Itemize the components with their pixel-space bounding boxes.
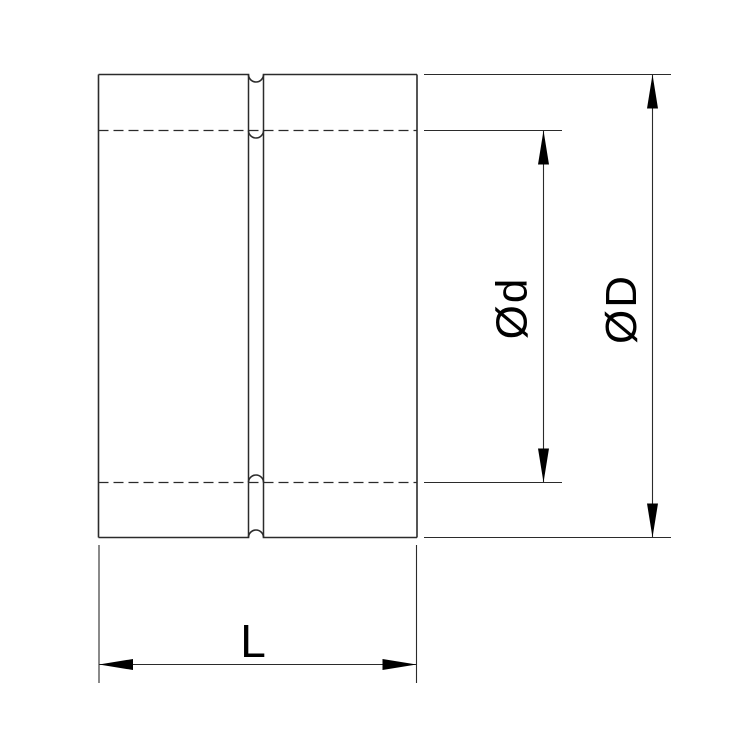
label-inner-diameter: Ød: [487, 277, 536, 340]
arrowhead-outer-diameter-down-icon: [647, 504, 658, 538]
arrowhead-length-left-icon: [99, 659, 133, 670]
label-outer-diameter: ØD: [597, 274, 646, 344]
technical-drawing-canvas: Ød ØD L: [0, 0, 733, 729]
sleeve-dimension-drawing: Ød ØD L: [0, 0, 733, 729]
label-length: L: [240, 615, 266, 667]
arrowhead-length-right-icon: [383, 659, 417, 670]
slot-bottom-inner-arc: [249, 475, 264, 482]
slot-top-inner-arc: [249, 131, 264, 139]
arrowhead-outer-diameter-up-icon: [647, 75, 658, 109]
part-bottom-edge: [99, 530, 418, 537]
arrowhead-inner-diameter-up-icon: [538, 131, 549, 165]
arrowhead-inner-diameter-down-icon: [538, 449, 549, 483]
part-top-edge: [99, 75, 418, 83]
